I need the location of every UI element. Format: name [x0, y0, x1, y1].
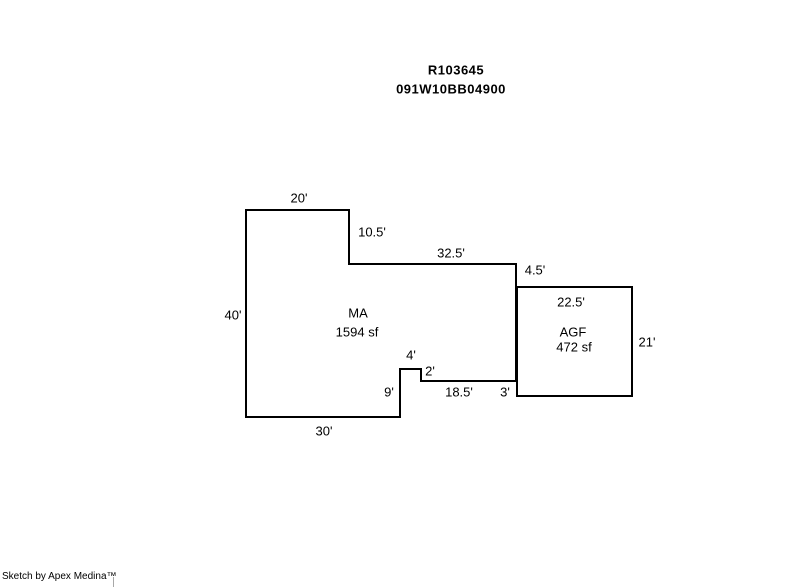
dimension-label-lower-right: 18.5' [445, 386, 473, 399]
sketch-page: R103645 091W10BB04900 20' 10.5' 32.5' 4.… [0, 0, 800, 587]
dimension-label-bottom: 30' [316, 425, 333, 438]
area-code-main: MA [348, 307, 368, 320]
dimension-label-garage-right: 21' [639, 336, 656, 349]
main-area-outline [246, 210, 516, 417]
dimension-label-notch-top: 4' [406, 349, 416, 362]
dimension-label-left-side: 40' [225, 309, 242, 322]
area-size-garage: 472 sf [556, 341, 591, 354]
sketch-credit: Sketch by Apex Medina™ [2, 571, 117, 582]
dimension-label-top: 20' [291, 192, 308, 205]
footer-divider-line [113, 577, 114, 587]
area-code-garage: AGF [560, 326, 587, 339]
area-size-main: 1594 sf [336, 326, 379, 339]
dimension-label-upper-right: 32.5' [437, 247, 465, 260]
dimension-label-garage-offset: 4.5' [525, 264, 546, 277]
dimension-label-garage-stub: 3' [500, 386, 510, 399]
dimension-label-notch-left: 9' [384, 386, 394, 399]
sketch-drawing [0, 0, 800, 587]
dimension-label-notch-side: 2' [425, 365, 435, 378]
dimension-label-step-down: 10.5' [358, 226, 386, 239]
dimension-label-garage-top: 22.5' [557, 296, 585, 309]
